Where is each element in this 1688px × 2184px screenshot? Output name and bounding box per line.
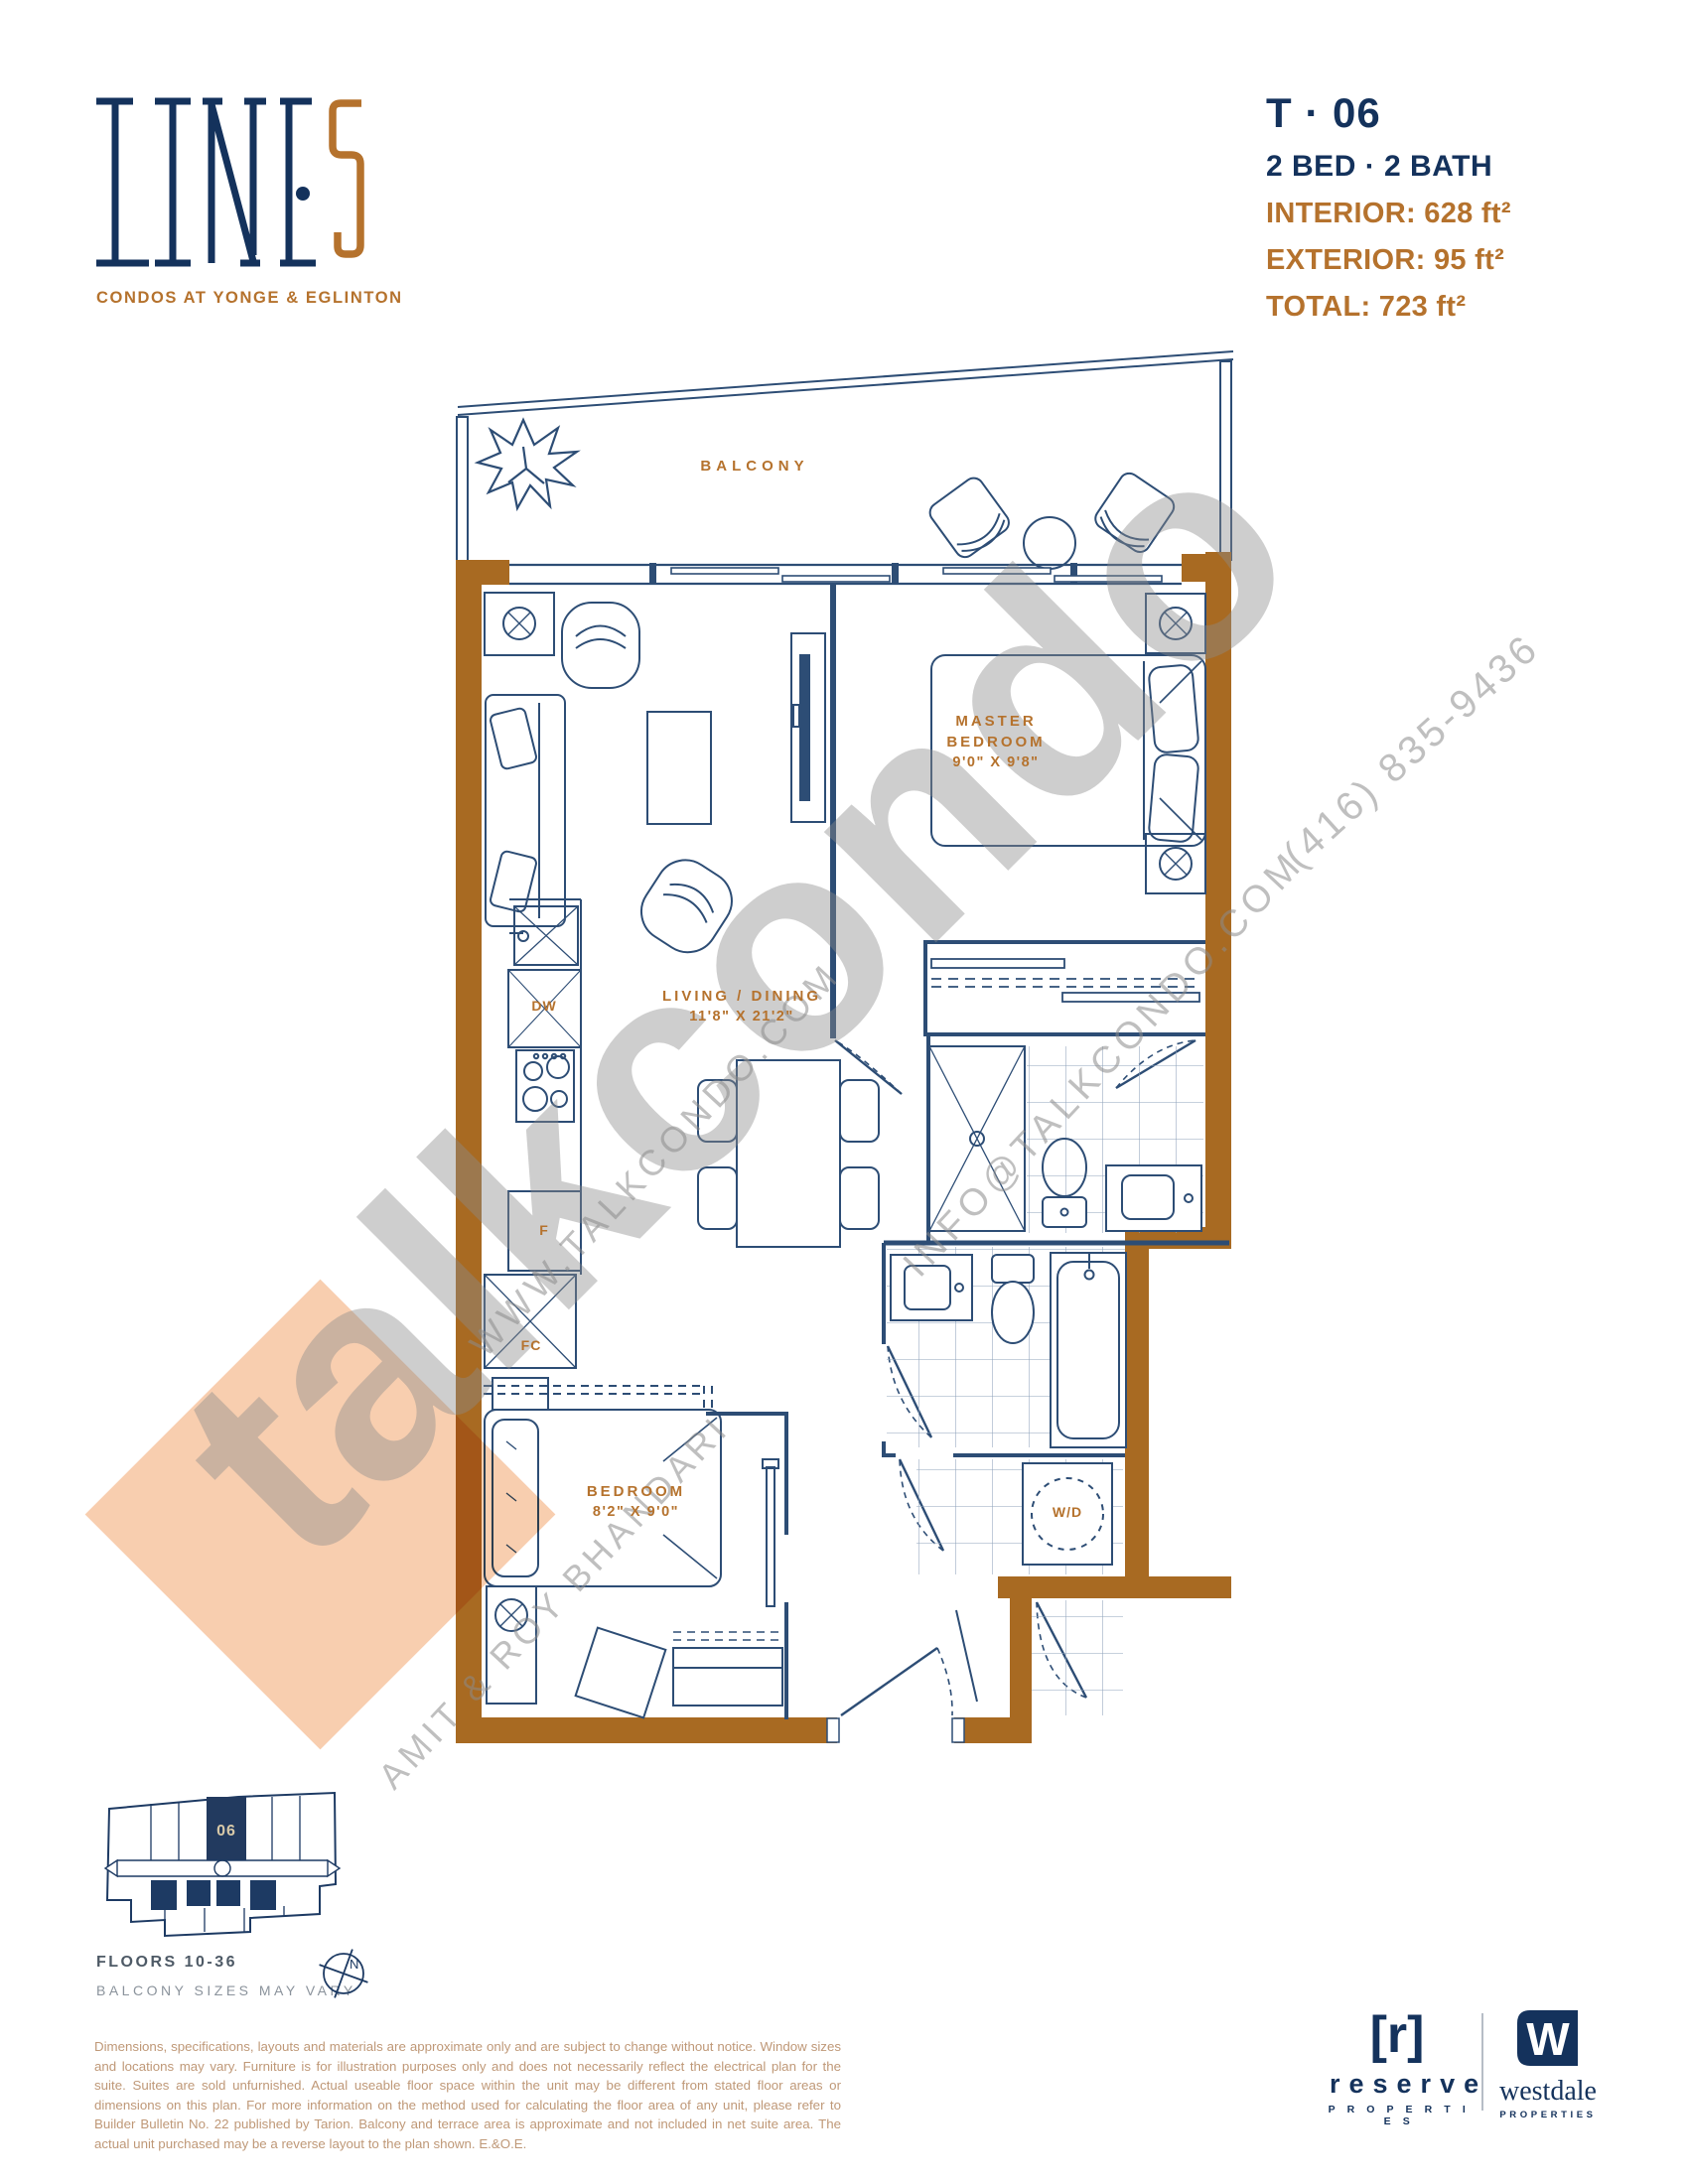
living-dining <box>485 593 879 1247</box>
washer-dryer-label: W/D <box>1032 1504 1103 1520</box>
dresser-lamp-icon <box>487 1586 536 1704</box>
dishwasher-label: DW <box>513 998 575 1014</box>
fridge-label: F <box>513 1222 575 1238</box>
balcony-chair-icon <box>926 470 1178 562</box>
cooktop-icon <box>516 1050 574 1122</box>
floor-plan: 06 N <box>0 0 1688 2184</box>
living-dining-label: LIVING / DINING 11'8" X 21'2" <box>633 986 851 1027</box>
key-plan: 06 <box>105 1793 340 1936</box>
living-label-dims: 11'8" X 21'2" <box>633 1007 851 1027</box>
bathroom-sink-icon <box>891 1255 972 1320</box>
master-label-line2: BEDROOM <box>912 732 1080 752</box>
fan-coil-label: FC <box>499 1337 563 1353</box>
second-bedroom <box>484 1378 782 1717</box>
closet-icon <box>931 959 1199 1002</box>
armchair-icon <box>630 849 743 964</box>
window-wall <box>509 563 1182 585</box>
desk-icon <box>673 1632 782 1706</box>
bedroom-label-dims: 8'2" X 9'0" <box>539 1502 733 1523</box>
master-bedroom-label: MASTER BEDROOM 9'0" X 9'8" <box>912 711 1080 773</box>
main-bath <box>887 1247 1126 1447</box>
toilet-icon <box>992 1255 1034 1343</box>
armchair-icon <box>562 603 639 688</box>
shower-icon <box>929 1046 1025 1231</box>
coffee-table-icon <box>647 712 711 824</box>
tree-icon <box>478 420 577 508</box>
living-label-name: LIVING / DINING <box>633 986 851 1007</box>
ensuite-bath <box>929 1046 1203 1233</box>
tv-icon <box>791 633 825 822</box>
nightstand-lamp-icon <box>1146 834 1205 893</box>
master-label-dims: 9'0" X 9'8" <box>912 752 1080 773</box>
bathroom-sink-icon <box>1106 1165 1201 1231</box>
nightstand-lamp-icon <box>1146 594 1205 653</box>
bathtub-icon <box>1051 1253 1126 1447</box>
master-label-line1: MASTER <box>912 711 1080 732</box>
north-compass-icon: N <box>311 1941 377 2007</box>
sofa-icon <box>486 695 565 926</box>
north-label: N <box>350 1957 358 1972</box>
bedroom-label-name: BEDROOM <box>539 1481 733 1502</box>
kitchen <box>485 899 581 1368</box>
side-table-icon <box>576 1628 666 1718</box>
balcony-label: BALCONY <box>650 456 859 477</box>
key-plan-unit-number: 06 <box>216 1823 236 1840</box>
dining-table-icon <box>698 1060 879 1247</box>
bedroom-label: BEDROOM 8'2" X 9'0" <box>539 1481 733 1523</box>
balcony-table-icon <box>1024 517 1075 569</box>
ceiling-light-icon <box>485 593 554 655</box>
